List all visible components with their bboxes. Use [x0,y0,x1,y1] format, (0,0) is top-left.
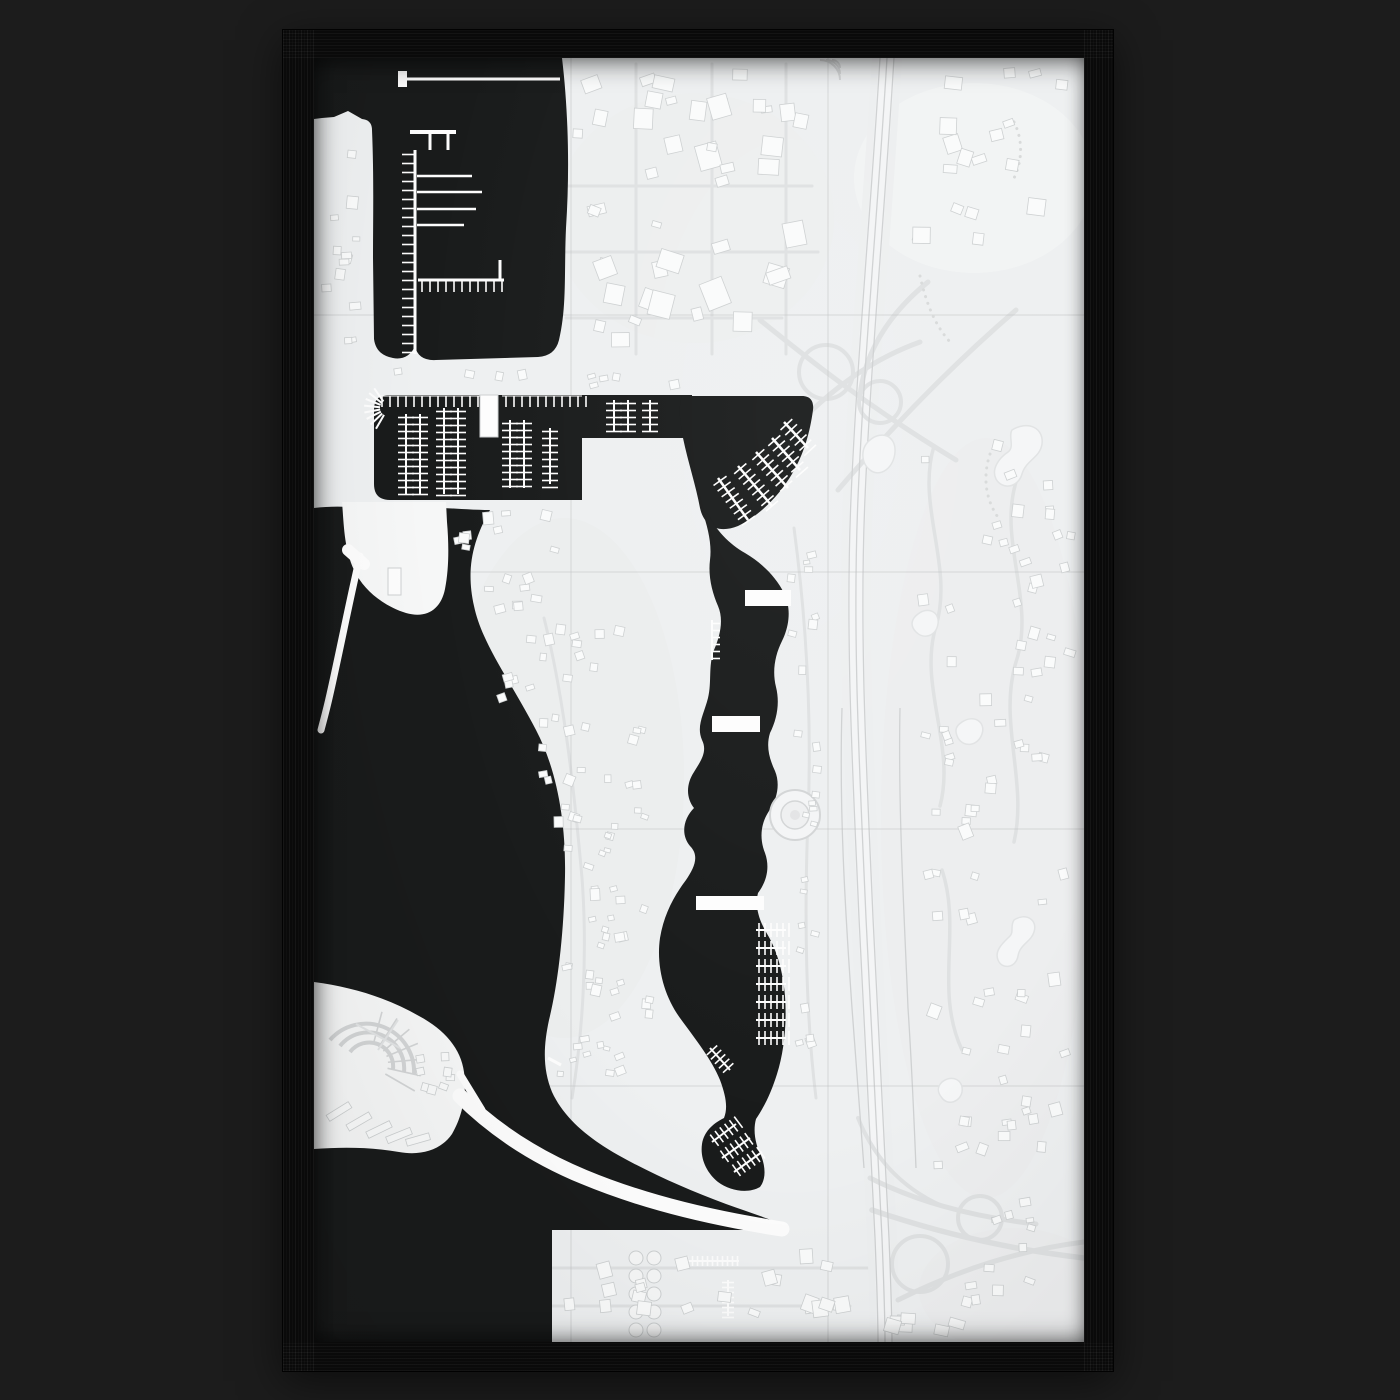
frame-moulding-right [1084,30,1113,1371]
frame-moulding-top [283,30,1113,58]
picture-frame [283,30,1113,1371]
pond-3 [956,719,983,745]
storage-tank [647,1287,661,1301]
map-opening [314,58,1084,1342]
shade-topmid [554,93,834,343]
canal-bridge-3 [696,896,764,910]
storage-tank [647,1323,661,1337]
marina-pier-block [480,395,498,437]
frame-moulding-left [283,30,314,1371]
frame-moulding-bottom [283,1342,1113,1371]
canal-bridge-1 [745,590,791,606]
storage-tank [647,1269,661,1283]
city-map-relief [314,58,1084,1342]
storage-tank [629,1323,643,1337]
peninsula-building [388,568,401,595]
shade-suburb [881,438,1084,1198]
circular-plaza [790,810,800,820]
canal-bridge-2 [712,716,760,732]
storage-tank [647,1251,661,1265]
photo-background [0,0,1400,1400]
storage-tank [629,1251,643,1265]
pond-4 [938,1078,962,1102]
